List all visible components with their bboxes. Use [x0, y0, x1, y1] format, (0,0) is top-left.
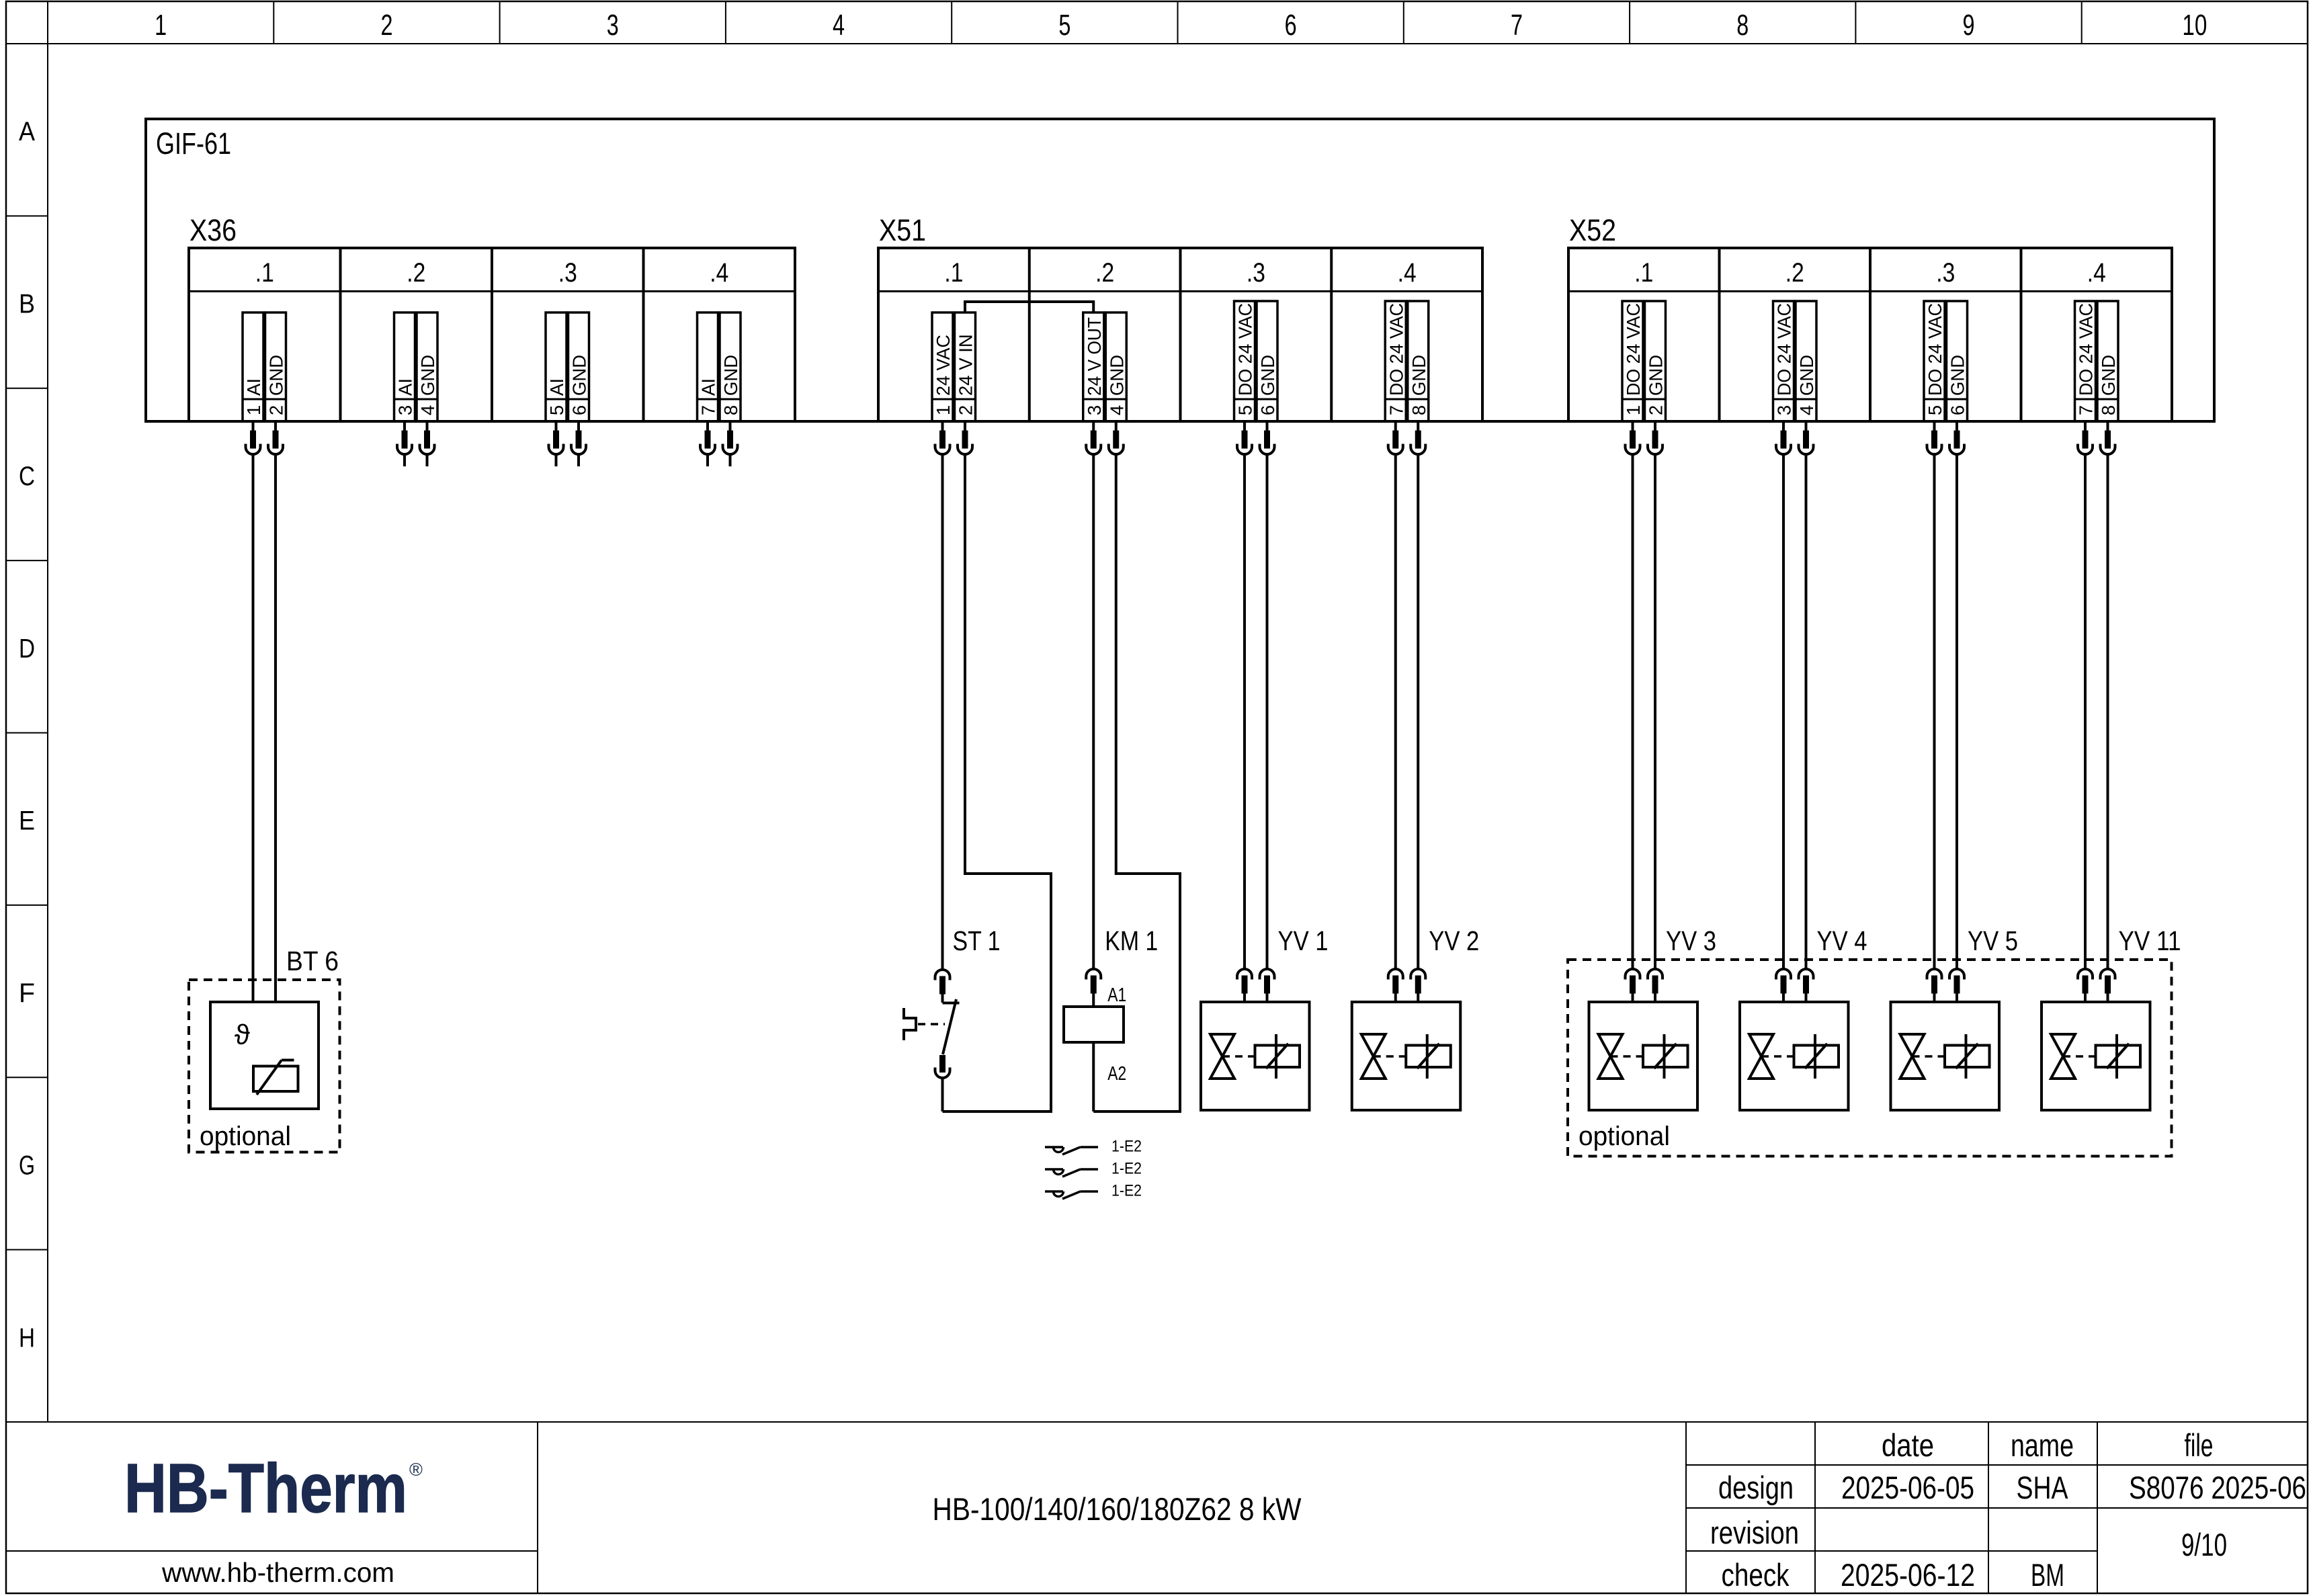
- svg-text:6: 6: [569, 405, 590, 415]
- svg-text:2: 2: [956, 405, 976, 415]
- svg-text:4: 4: [417, 405, 438, 415]
- svg-text:8: 8: [720, 405, 741, 415]
- svg-text:H: H: [19, 1323, 35, 1353]
- svg-text:.1: .1: [1634, 258, 1653, 288]
- svg-text:.4: .4: [1398, 258, 1417, 288]
- svg-text:7: 7: [1386, 405, 1406, 415]
- svg-text:AI: AI: [546, 378, 567, 396]
- svg-text:BT 6: BT 6: [286, 946, 339, 976]
- svg-text:C: C: [19, 462, 35, 491]
- svg-text:.2: .2: [1095, 258, 1114, 288]
- svg-text:A: A: [19, 117, 35, 146]
- svg-text:6: 6: [1947, 405, 1968, 415]
- svg-text:GND: GND: [2098, 355, 2119, 396]
- svg-text:1: 1: [155, 9, 167, 42]
- svg-text:8: 8: [2098, 405, 2119, 415]
- svg-text:6: 6: [1285, 9, 1297, 42]
- svg-text:AI: AI: [243, 378, 264, 396]
- svg-text:date: date: [1882, 1427, 1934, 1463]
- svg-text:name: name: [2011, 1427, 2074, 1463]
- svg-text:F: F: [19, 978, 35, 1008]
- svg-text:A1: A1: [1107, 984, 1126, 1006]
- svg-text:.4: .4: [2087, 258, 2106, 288]
- svg-text:check: check: [1722, 1557, 1790, 1593]
- svg-text:GND: GND: [1947, 355, 1968, 396]
- svg-text:X51: X51: [879, 213, 926, 247]
- svg-text:GND: GND: [417, 355, 438, 396]
- svg-text:GND: GND: [1408, 355, 1429, 396]
- svg-text:8: 8: [1408, 405, 1429, 415]
- svg-text:SHA: SHA: [2017, 1470, 2069, 1505]
- svg-text:7: 7: [2076, 405, 2097, 415]
- svg-text:5: 5: [546, 405, 567, 415]
- svg-text:2: 2: [266, 405, 287, 415]
- svg-text:2025-06-12: 2025-06-12: [1841, 1557, 1975, 1593]
- svg-text:HB-100/140/160/180Z62 8 kW: HB-100/140/160/180Z62 8 kW: [933, 1491, 1302, 1527]
- svg-text:A2: A2: [1107, 1063, 1126, 1085]
- svg-text:DO 24 VAC: DO 24 VAC: [1623, 303, 1644, 396]
- svg-text:5: 5: [1058, 9, 1070, 42]
- svg-text:revision: revision: [1710, 1515, 1799, 1550]
- svg-text:2025-06-05: 2025-06-05: [1841, 1470, 1974, 1505]
- svg-text:.2: .2: [407, 258, 425, 288]
- svg-text:7: 7: [1511, 9, 1523, 42]
- svg-text:X36: X36: [190, 213, 237, 247]
- svg-text:YV 4: YV 4: [1817, 925, 1867, 956]
- svg-text:DO 24 VAC: DO 24 VAC: [2076, 303, 2097, 396]
- svg-text:YV 5: YV 5: [1968, 925, 2018, 956]
- svg-text:G: G: [19, 1150, 35, 1180]
- svg-text:1: 1: [933, 405, 954, 415]
- svg-text:24 VAC: 24 VAC: [933, 335, 954, 396]
- svg-text:9: 9: [1963, 9, 1975, 42]
- svg-text:1-E2: 1-E2: [1111, 1138, 1142, 1156]
- svg-text:1-E2: 1-E2: [1111, 1160, 1142, 1178]
- svg-text:B: B: [19, 290, 35, 319]
- svg-text:4: 4: [1796, 405, 1817, 415]
- svg-text:.4: .4: [710, 258, 728, 288]
- svg-text:GND: GND: [1257, 355, 1278, 396]
- svg-text:.1: .1: [944, 258, 963, 288]
- svg-text:HB-Therm: HB-Therm: [124, 1450, 407, 1527]
- svg-text:5: 5: [1925, 405, 1945, 415]
- svg-text:BM: BM: [2031, 1557, 2064, 1593]
- svg-text:3: 3: [395, 405, 416, 415]
- svg-text:ϑ: ϑ: [235, 1019, 250, 1050]
- svg-text:D: D: [19, 634, 35, 663]
- svg-text:GND: GND: [1106, 355, 1127, 396]
- svg-text:4: 4: [833, 9, 845, 42]
- svg-text:.3: .3: [1247, 258, 1265, 288]
- svg-text:DO 24 VAC: DO 24 VAC: [1235, 303, 1256, 396]
- svg-text:GND: GND: [1646, 355, 1667, 396]
- svg-text:YV 3: YV 3: [1666, 925, 1716, 956]
- svg-text:GND: GND: [266, 355, 287, 396]
- svg-text:.2: .2: [1785, 258, 1804, 288]
- svg-text:1-E2: 1-E2: [1111, 1182, 1142, 1200]
- svg-text:2: 2: [380, 9, 392, 42]
- svg-text:1: 1: [1623, 405, 1644, 415]
- svg-text:3: 3: [607, 9, 619, 42]
- svg-text:3: 3: [1774, 405, 1795, 415]
- svg-text:YV 1: YV 1: [1278, 925, 1329, 956]
- svg-text:E: E: [19, 806, 35, 836]
- svg-text:AI: AI: [698, 378, 719, 396]
- svg-text:2: 2: [1646, 405, 1667, 415]
- svg-text:4: 4: [1106, 405, 1127, 415]
- svg-text:10: 10: [2182, 9, 2207, 42]
- svg-text:GIF-61: GIF-61: [156, 126, 231, 161]
- svg-text:6: 6: [1257, 405, 1278, 415]
- svg-text:.3: .3: [1936, 258, 1955, 288]
- svg-text:optional: optional: [1579, 1122, 1670, 1151]
- svg-text:7: 7: [698, 405, 719, 415]
- svg-text:KM 1: KM 1: [1105, 925, 1158, 956]
- svg-text:GND: GND: [720, 355, 741, 396]
- svg-text:GND: GND: [1796, 355, 1817, 396]
- svg-text:www.hb-therm.com: www.hb-therm.com: [161, 1557, 394, 1588]
- svg-text:YV 11: YV 11: [2119, 925, 2181, 956]
- svg-text:X52: X52: [1569, 213, 1616, 247]
- svg-text:9/10: 9/10: [2181, 1527, 2227, 1562]
- svg-text:24 V IN: 24 V IN: [956, 334, 976, 396]
- svg-text:®: ®: [409, 1460, 423, 1480]
- svg-text:.1: .1: [255, 258, 274, 288]
- svg-text:S8076 2025-06: S8076 2025-06: [2129, 1470, 2306, 1505]
- svg-text:.3: .3: [558, 258, 577, 288]
- svg-text:optional: optional: [200, 1122, 291, 1151]
- svg-text:8: 8: [1736, 9, 1749, 42]
- svg-text:GND: GND: [569, 355, 590, 396]
- svg-text:24 V OUT: 24 V OUT: [1084, 317, 1105, 396]
- svg-text:DO 24 VAC: DO 24 VAC: [1386, 303, 1406, 396]
- svg-text:file: file: [2185, 1427, 2214, 1463]
- svg-text:DO 24 VAC: DO 24 VAC: [1925, 303, 1945, 396]
- svg-text:5: 5: [1235, 405, 1256, 415]
- svg-text:AI: AI: [395, 378, 416, 396]
- svg-text:3: 3: [1084, 405, 1105, 415]
- svg-text:ST 1: ST 1: [953, 925, 1001, 956]
- svg-text:DO 24 VAC: DO 24 VAC: [1774, 303, 1795, 396]
- svg-text:YV 2: YV 2: [1429, 925, 1479, 956]
- svg-text:1: 1: [243, 405, 264, 415]
- svg-text:design: design: [1718, 1470, 1794, 1505]
